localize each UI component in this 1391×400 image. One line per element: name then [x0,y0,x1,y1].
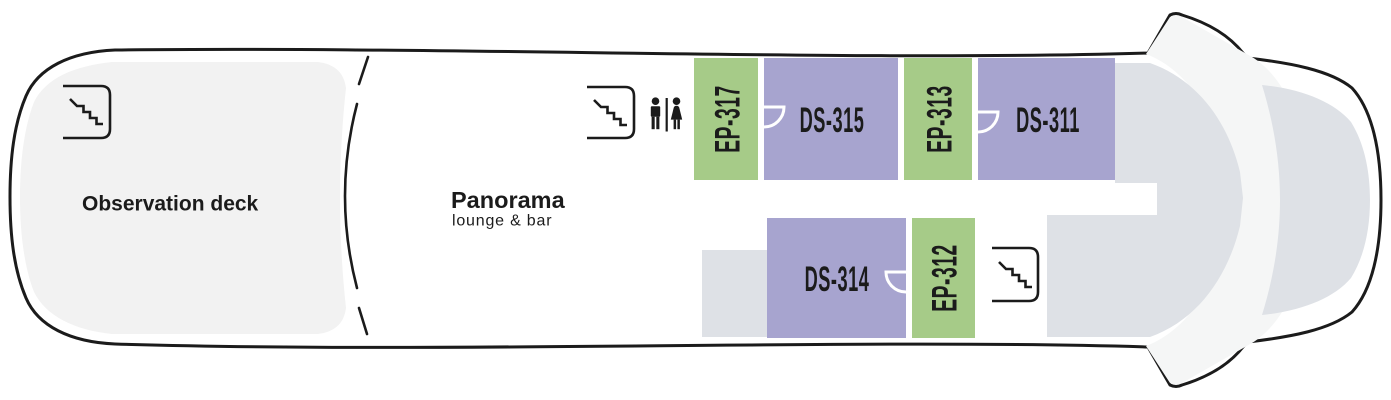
cabin-EP-312[interactable]: EP-312 [912,218,975,338]
deck-plan-svg: EP-317 DS-315 EP-313 DS-311 DS-314 EP-31… [0,0,1391,400]
cabin-EP-313[interactable]: EP-313 [904,58,972,180]
cabin-DS-314[interactable]: DS-314 [767,218,906,338]
panorama-title: Panorama [451,187,566,213]
cabin-DS-315-label: DS-315 [800,101,865,140]
cabin-DS-315[interactable]: DS-315 [764,58,898,180]
cabin-DS-311-label: DS-311 [1016,101,1080,140]
cabin-EP-312-label: EP-312 [924,244,964,311]
panorama-subtitle: lounge & bar [452,213,552,230]
cabin-EP-317-label: EP-317 [707,85,747,152]
restroom-divider [666,98,668,132]
cabin-EP-317[interactable]: EP-317 [694,58,758,180]
cabin-DS-314-label: DS-314 [805,260,870,299]
panorama-area-label: Panorama lounge & bar [451,187,566,230]
deck-plan: EP-317 DS-315 EP-313 DS-311 DS-314 EP-31… [0,0,1391,400]
observation-deck-label: Observation deck [82,193,259,216]
cabin-EP-313-label: EP-313 [919,85,959,152]
utility-block [702,250,767,337]
cabin-DS-311[interactable]: DS-311 [978,58,1115,180]
